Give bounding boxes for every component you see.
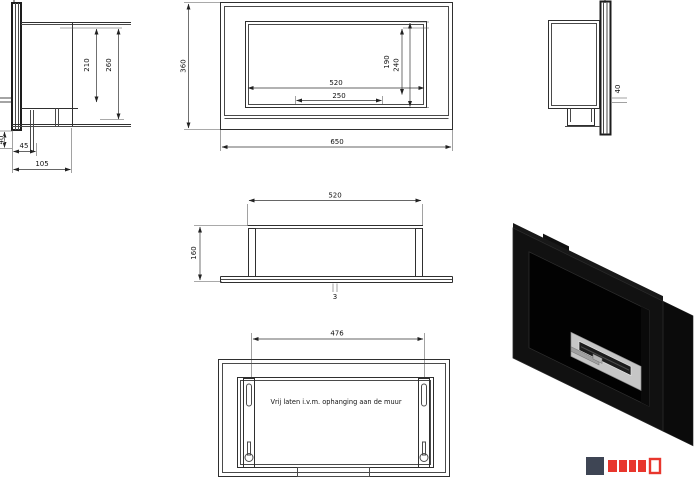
- rear-back-panel: [238, 378, 434, 468]
- logo-outline-square: [650, 459, 660, 473]
- dim-label-height-inner: 210: [83, 58, 91, 71]
- logo-mark: [586, 457, 604, 475]
- technical-drawing-sheet: 210 260 40 45 105 520 250 190 240: [0, 0, 700, 495]
- foot-bracket: [568, 109, 595, 126]
- tray-left-wall: [249, 229, 256, 277]
- wall-plate-right: [601, 2, 611, 135]
- bracket-slot-right: [422, 384, 427, 406]
- dim-label-height-outer: 260: [105, 58, 113, 71]
- logo-wordmark: [608, 459, 660, 473]
- view-front: 520 250 190 240 360 650: [180, 3, 453, 152]
- dim-label-base-width: 105: [35, 160, 48, 168]
- box-body-right: [549, 21, 600, 109]
- mounting-bracket-right: [419, 379, 430, 468]
- brand-logo: [586, 457, 660, 475]
- mounting-bracket-left: [244, 379, 255, 468]
- view-top: 520 160 3: [190, 192, 453, 302]
- dim-label-gap: 40: [614, 85, 622, 94]
- bracket-slot-left: [247, 384, 252, 406]
- dim-label-wall-offset: 40: [0, 136, 6, 145]
- side-face: [663, 301, 693, 446]
- dim-label-top-depth: 160: [190, 246, 198, 259]
- view-3d-render: [513, 219, 693, 446]
- dim-label-opening-width: 520: [329, 79, 342, 87]
- dim-label-inner-height: 190: [383, 55, 391, 68]
- dim-label-top-width: 520: [328, 192, 341, 200]
- tray-right-wall: [416, 229, 423, 277]
- view-side-section-left: 210 260 40 45 105: [0, 0, 131, 173]
- drawing-canvas: 210 260 40 45 105 520 250 190 240: [0, 0, 700, 495]
- chamber-side-wall: [641, 306, 649, 406]
- dim-label-foot-width: 45: [20, 142, 29, 150]
- rear-mounting-note: Vrij laten i.v.m. ophanging aan de muur: [270, 398, 401, 406]
- dim-label-bracket-spacing: 476: [330, 330, 344, 338]
- view-side-right: 40: [549, 0, 628, 135]
- dim-label-slot-width: 250: [332, 92, 345, 100]
- wall-plate: [12, 3, 21, 130]
- dim-label-plate-thickness: 3: [333, 293, 337, 301]
- view-rear: 476 Vrij laten i.v.m. ophanging aan de m…: [219, 330, 450, 477]
- dim-label-overall-width: 650: [330, 138, 343, 146]
- dim-label-overall-height: 360: [180, 59, 188, 72]
- dim-label-opening-height: 240: [393, 58, 401, 71]
